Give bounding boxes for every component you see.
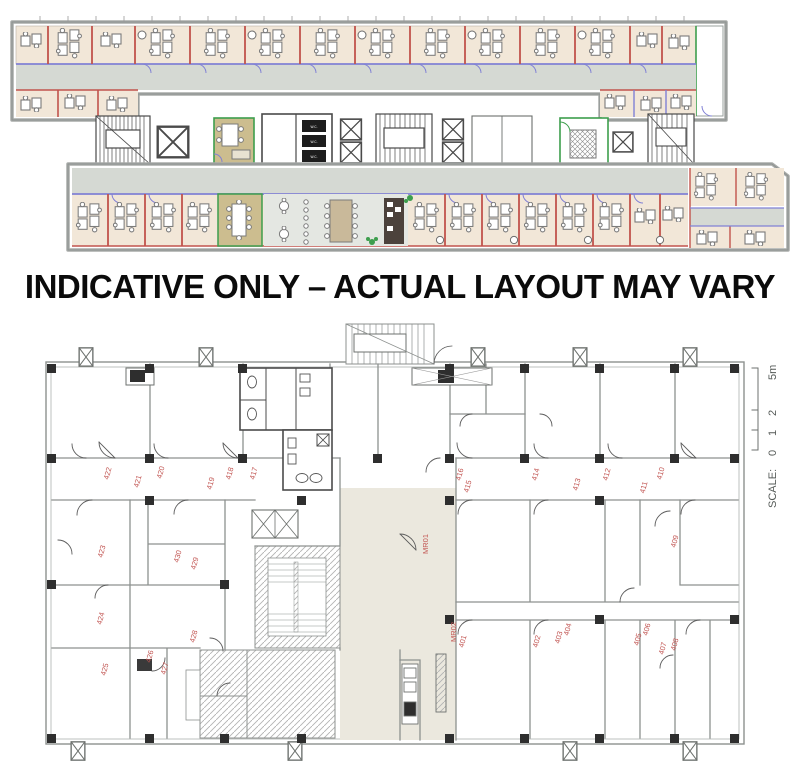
wc-label-1: W.C. (311, 125, 318, 129)
stair-top (346, 324, 452, 364)
room-label-MR01: MR01 (421, 534, 430, 554)
disclaimer-text: INDICATIVE ONLY – ACTUAL LAYOUT MAY VARY (25, 268, 775, 306)
scale-tick-2: 2 (767, 410, 779, 416)
floorplan-sheet: W.C. W.C. W.C. (0, 0, 800, 768)
room-label-MR02: MR02 (449, 622, 458, 642)
disclaimer-banner: INDICATIVE ONLY – ACTUAL LAYOUT MAY VARY (0, 260, 800, 314)
cad-structure: 5m 2 1 0 SCALE: 422421420419418417416415… (46, 324, 779, 760)
wc-label-2: W.C. (311, 140, 318, 144)
scale-label: SCALE: (767, 469, 779, 508)
core-blocks: W.C. W.C. W.C. (96, 114, 694, 166)
lower-wing (68, 164, 788, 250)
scale-bar: 5m 2 1 0 SCALE: (752, 365, 779, 508)
stair-core (255, 546, 340, 648)
hatched-zone (186, 650, 335, 738)
scale-tick-5m: 5m (767, 365, 779, 380)
scale-tick-1: 1 (767, 430, 779, 436)
upper-wing (12, 16, 726, 120)
cad-plan: 5m 2 1 0 SCALE: 422421420419418417416415… (0, 318, 800, 768)
wc-label-3: W.C. (311, 155, 318, 159)
indicative-plan: W.C. W.C. W.C. (0, 4, 800, 260)
scale-tick-0: 0 (767, 450, 779, 456)
lift-pair (252, 510, 298, 538)
wc-stack: W.C. W.C. W.C. (302, 120, 326, 162)
